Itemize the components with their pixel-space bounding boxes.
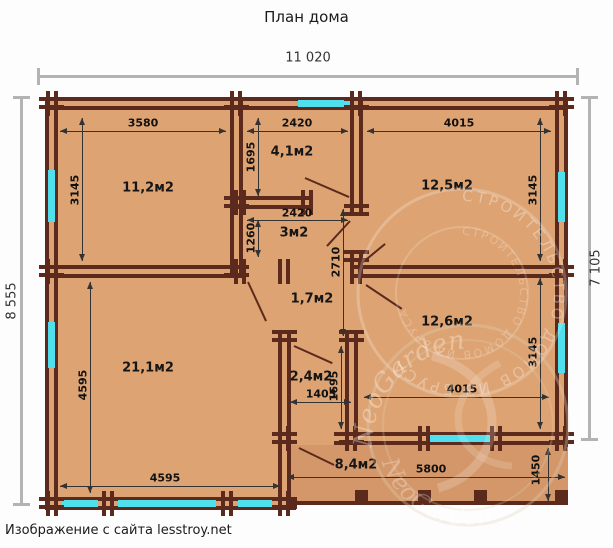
wall-joint [549, 265, 574, 277]
dimension-line [60, 131, 226, 132]
dimension-label: 4595 [150, 472, 181, 485]
dimension-label: 4015 [444, 117, 475, 130]
dimension-label: 3580 [128, 117, 159, 130]
wall-joint [344, 204, 369, 216]
window-porch-wall [428, 432, 492, 445]
room-label-12-6: 12,6м2 [421, 315, 473, 330]
window-bottom-1 [62, 497, 98, 510]
dimension-line [247, 131, 348, 132]
overall-dimension-line-left [20, 97, 23, 505]
dimension-label: 2710 [330, 247, 343, 278]
room-label-11-2: 11,2м2 [122, 181, 174, 196]
wall-joint [39, 265, 64, 277]
dimension-line [364, 397, 549, 398]
window-right-lower [555, 323, 568, 373]
dimension-label: 4015 [447, 383, 478, 396]
dimension-label: 3145 [527, 175, 540, 206]
wall-joint [350, 259, 362, 284]
window-bottom-2 [118, 497, 216, 510]
dimension-line [540, 278, 541, 429]
floor-plan-page: План дома [0, 0, 613, 548]
room-label-8-4: 8,4м2 [335, 458, 378, 473]
dimension-label: 1450 [530, 455, 543, 486]
wall-joint [221, 491, 233, 516]
wall-joint [490, 426, 502, 451]
dimension-line [343, 209, 344, 336]
room-label-2-4: 2,4м2 [290, 370, 333, 385]
wall-joint [39, 97, 64, 109]
dimension-line [247, 220, 348, 221]
window-left-lower [45, 322, 58, 368]
room-label-21-1: 21,1м2 [122, 361, 174, 376]
window-left-upper [45, 170, 58, 222]
wall-joint [102, 491, 114, 516]
porch-post [474, 490, 487, 503]
dimension-label: 4595 [77, 370, 90, 401]
window-bottom-3 [238, 497, 272, 510]
room-label-3: 3м2 [280, 226, 309, 241]
dimension-label: 5800 [416, 463, 447, 476]
plan-title: План дома [0, 8, 613, 26]
overall-dimension-line-top [38, 75, 578, 78]
dimension-label: 2420 [282, 117, 313, 130]
wall-joint [549, 432, 574, 444]
dimension-label: 1260 [245, 223, 258, 254]
porch-post [418, 490, 431, 503]
dimension-line [90, 282, 91, 493]
wall-joint [224, 97, 249, 109]
wall-joint [418, 426, 430, 451]
window-right-upper [555, 172, 568, 222]
porch-post [355, 490, 368, 503]
wall-joint [272, 497, 297, 509]
wall-joint [278, 259, 290, 284]
dimension-label: 3145 [527, 337, 540, 368]
dimension-label: 2420 [282, 207, 313, 220]
wall-joint [224, 265, 249, 277]
overall-dimension-label-right: 7 105 [589, 249, 604, 286]
wall-joint [272, 330, 297, 342]
wall-int-h-right [350, 265, 568, 278]
dimension-line [341, 346, 342, 429]
wall-joint [344, 97, 369, 109]
overall-dimension-label-top: 11 020 [285, 51, 331, 66]
wall-joint [224, 196, 249, 208]
wall-joint [39, 497, 64, 509]
dimension-line [258, 220, 259, 257]
room-label-4-1: 4,1м2 [271, 145, 314, 160]
source-caption: Изображение с сайта lesstroy.net [5, 523, 232, 538]
dimension-line [258, 118, 259, 196]
wall-left [45, 97, 58, 510]
overall-dimension-label-left: 8 555 [5, 282, 20, 319]
dimension-line [82, 118, 83, 261]
wall-joint [339, 432, 364, 444]
dimension-line [60, 486, 280, 487]
wall-joint [549, 97, 574, 109]
dimension-line [540, 118, 541, 261]
room-label-1-7: 1,7м2 [291, 292, 334, 307]
dimension-line [367, 131, 551, 132]
dimension-line [548, 448, 549, 501]
dimension-label: 1695 [245, 142, 258, 173]
wall-joint [272, 432, 297, 444]
dimension-line [287, 477, 565, 478]
wall-int-h-left [45, 265, 240, 278]
dimension-label: 3145 [69, 175, 82, 206]
wall-int-v-left [230, 97, 243, 278]
room-label-12-5: 12,5м2 [421, 179, 473, 194]
porch-post [555, 490, 568, 503]
